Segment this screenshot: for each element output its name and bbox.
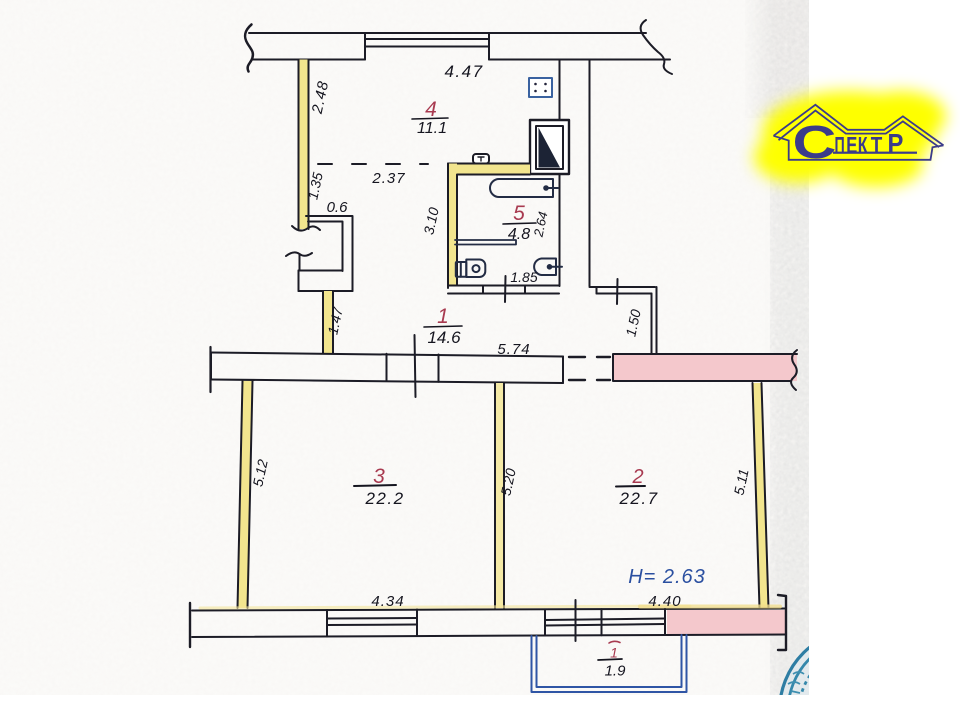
svg-text:4.34: 4.34 [371, 593, 404, 610]
svg-text:Е: Е [846, 133, 857, 158]
svg-text:Т: Т [871, 133, 883, 158]
svg-text:14.6: 14.6 [427, 328, 461, 347]
svg-text:П: П [835, 134, 845, 159]
svg-text:1.85: 1.85 [510, 269, 537, 285]
svg-text:H= 2.63: H= 2.63 [628, 566, 706, 588]
svg-text:2: 2 [631, 466, 643, 488]
svg-text:1.9: 1.9 [605, 663, 627, 680]
svg-text:11.1: 11.1 [417, 120, 447, 137]
svg-text:C: C [793, 117, 837, 168]
svg-text:5: 5 [513, 202, 525, 225]
svg-text:1: 1 [610, 645, 618, 661]
svg-text:2.37: 2.37 [371, 170, 405, 187]
svg-text:P: P [888, 127, 904, 159]
svg-text:4.8: 4.8 [508, 226, 530, 243]
svg-text:4.47: 4.47 [444, 62, 483, 81]
svg-text:К: К [858, 133, 869, 158]
svg-text:1: 1 [437, 305, 449, 328]
svg-text:22.2: 22.2 [364, 489, 404, 508]
svg-text:0.6: 0.6 [327, 199, 349, 216]
svg-text:4: 4 [425, 98, 437, 121]
svg-text:5.74: 5.74 [497, 341, 530, 358]
svg-text:4.40: 4.40 [648, 593, 681, 610]
svg-text:22.7: 22.7 [618, 489, 658, 508]
